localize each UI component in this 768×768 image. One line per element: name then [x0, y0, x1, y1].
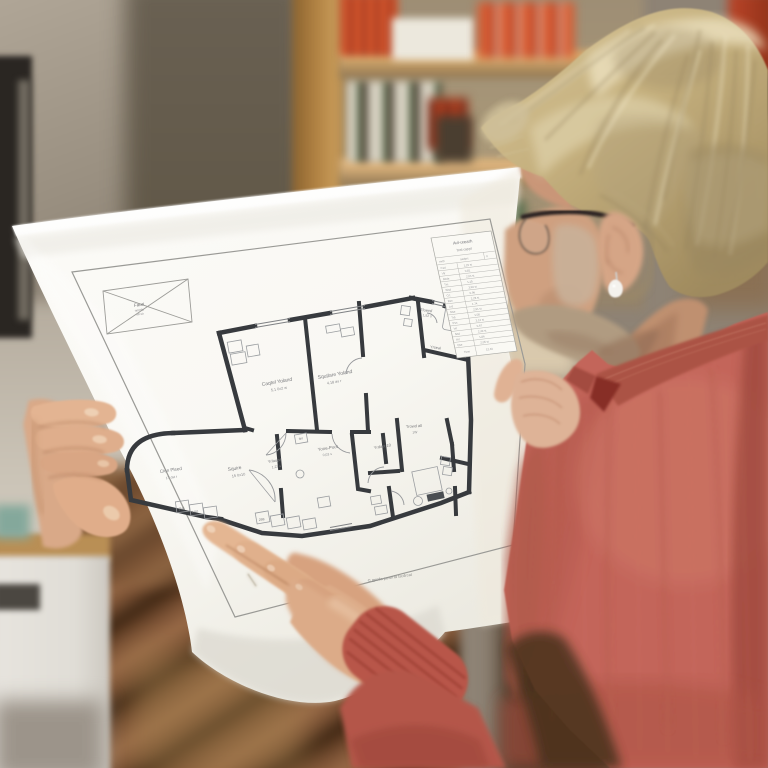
svg-text:298: 298 [259, 517, 265, 522]
svg-text:Bsde: Bsde [443, 276, 451, 281]
svg-text:12,40: 12,40 [485, 347, 493, 352]
svg-text:[4a]: [4a] [179, 506, 185, 511]
svg-text:tW: tW [298, 436, 303, 441]
